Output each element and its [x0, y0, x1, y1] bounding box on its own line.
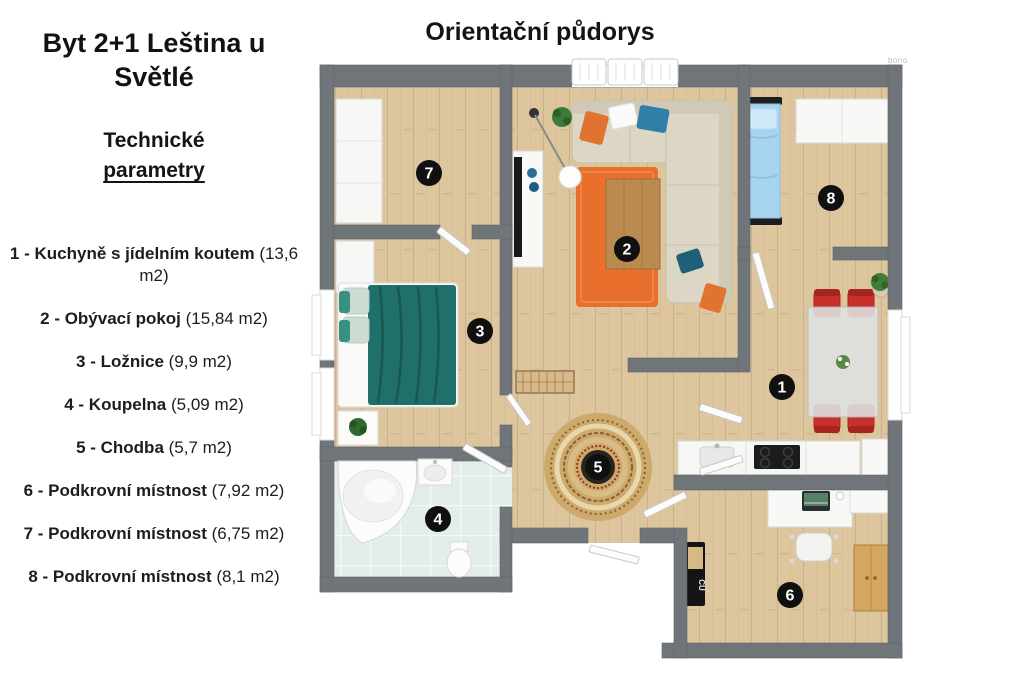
legend-item-6: 6 - Podkrovní místnost (7,92 m2)	[2, 480, 306, 502]
double-bed	[338, 283, 458, 407]
svg-text:2: 2	[623, 242, 632, 259]
dining-table	[808, 289, 878, 433]
bathroom-sink	[418, 459, 452, 485]
rattan-dresser	[516, 371, 574, 393]
legend-room-area: (9,9 m2)	[164, 352, 232, 371]
svg-text:7: 7	[425, 166, 434, 183]
svg-text:6: 6	[786, 588, 795, 605]
page-title: Byt 2+1 Leština u Světlé	[4, 26, 304, 94]
wardrobe-room7	[336, 99, 382, 223]
svg-text:8: 8	[827, 191, 836, 208]
window-bedroom-1	[320, 290, 334, 360]
window-bedroom-2	[320, 368, 334, 440]
tech-line2: parametry	[4, 156, 304, 186]
svg-text:1: 1	[778, 380, 787, 397]
legend-room-area: (15,84 m2)	[181, 309, 268, 328]
svg-text:3: 3	[476, 324, 485, 341]
legend-room-name: 6 - Podkrovní místnost	[24, 481, 207, 500]
window-kitchen	[888, 310, 902, 420]
legend-room-name: 3 - Ložnice	[76, 352, 164, 371]
tech-params-heading: Technické parametry	[4, 126, 304, 186]
real-estate-floorplan-page: Byt 2+1 Leština u Světlé Technické param…	[0, 0, 1024, 683]
legend-item-8: 8 - Podkrovní místnost (8,1 m2)	[2, 566, 306, 588]
plan-title: Orientační půdorys	[330, 18, 750, 47]
kitchen-cabinet	[862, 439, 888, 477]
legend-room-name: 4 - Koupelna	[64, 395, 166, 414]
legend-item-5: 5 - Chodba (5,7 m2)	[2, 437, 306, 459]
room-marker-8: 8	[818, 185, 844, 211]
floorplan-image: CU	[310, 55, 930, 671]
bedside-table	[338, 411, 378, 445]
legend-item-2: 2 - Obývací pokoj (15,84 m2)	[2, 308, 306, 330]
legend-room-area: (8,1 m2)	[212, 567, 280, 586]
room-marker-1: 1	[769, 374, 795, 400]
info-panel: Byt 2+1 Leština u Světlé Technické param…	[0, 0, 308, 683]
legend-room-name: 7 - Podkrovní místnost	[24, 524, 207, 543]
balcony-railing	[572, 59, 678, 85]
legend-item-7: 7 - Podkrovní místnost (6,75 m2)	[2, 523, 306, 545]
legend-item-4: 4 - Koupelna (5,09 m2)	[2, 394, 306, 416]
piano-keyboard: CU	[686, 542, 706, 606]
room-marker-6: 6	[777, 582, 803, 608]
legend-room-name: 5 - Chodba	[76, 438, 164, 457]
legend-list: 1 - Kuchyně s jídelním koutem (13,6 m2)2…	[2, 243, 306, 609]
room-marker-5: 5	[585, 454, 611, 480]
legend-room-name: 2 - Obývací pokoj	[40, 309, 181, 328]
plant-living	[552, 107, 572, 127]
legend-item-3: 3 - Ložnice (9,9 m2)	[2, 351, 306, 373]
room-marker-2: 2	[614, 236, 640, 262]
legend-room-area: (5,09 m2)	[166, 395, 243, 414]
legend-room-area: (5,7 m2)	[164, 438, 232, 457]
tv-sideboard	[513, 151, 543, 267]
tv	[514, 157, 522, 257]
legend-room-name: 1 - Kuchyně s jídelním koutem	[10, 244, 255, 263]
room-marker-4: 4	[425, 506, 451, 532]
legend-room-area: (7,92 m2)	[207, 481, 284, 500]
legend-room-area: (6,75 m2)	[207, 524, 284, 543]
wooden-cabinet	[854, 545, 888, 611]
legend-item-1: 1 - Kuchyně s jídelním koutem (13,6 m2)	[2, 243, 306, 287]
toilet	[447, 542, 471, 577]
keyboard-label: CU	[697, 579, 706, 591]
legend-room-name: 8 - Podkrovní místnost	[28, 567, 211, 586]
svg-text:4: 4	[434, 512, 443, 529]
wardrobe-room8	[796, 99, 888, 143]
tech-line1: Technické	[4, 126, 304, 156]
room-marker-7: 7	[416, 160, 442, 186]
room-marker-3: 3	[467, 318, 493, 344]
watermark: bono	[888, 56, 908, 65]
svg-text:5: 5	[594, 460, 603, 477]
